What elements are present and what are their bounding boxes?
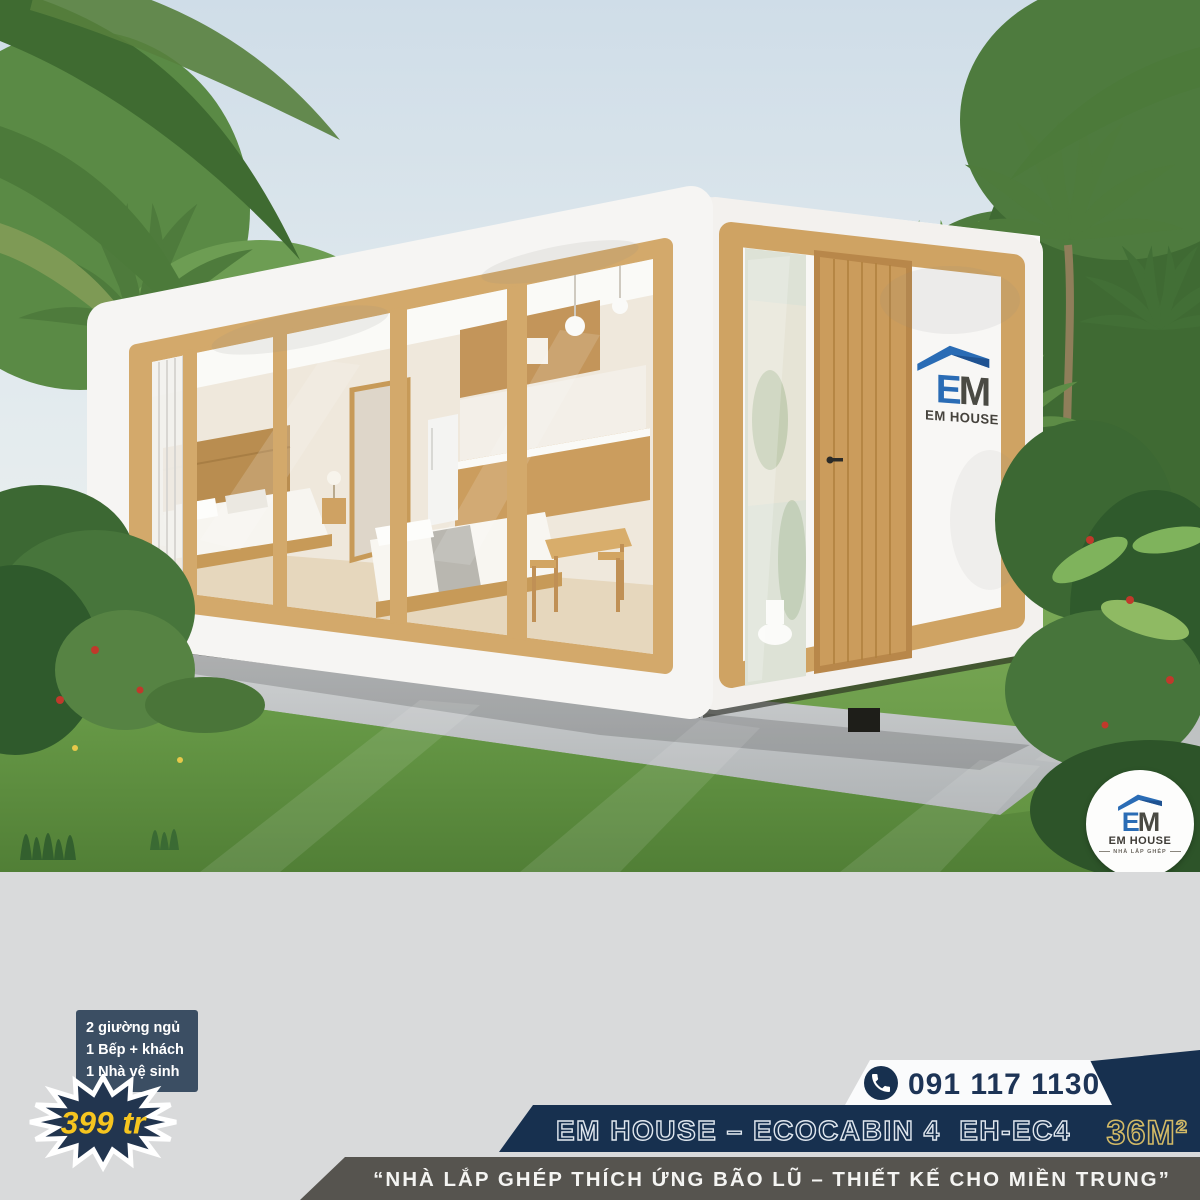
- pendant-lamp: [612, 298, 628, 314]
- wall-logo: EM EM HOUSE: [915, 341, 1008, 429]
- table-lamp: [327, 471, 341, 485]
- scene-svg: [0, 0, 1200, 872]
- area-label: 36M²: [1107, 1114, 1188, 1152]
- brand-badge: EM EM HOUSE NHÀ LẮP GHÉP: [1086, 770, 1194, 878]
- logo-em: EM: [915, 371, 1008, 412]
- nightstand: [322, 498, 346, 524]
- logo-em: EM: [1122, 811, 1159, 834]
- logo-e: E: [1122, 807, 1138, 837]
- feature-line: 2 giường ngủ: [86, 1018, 192, 1040]
- logo-tagline: NHÀ LẮP GHÉP: [1099, 849, 1180, 855]
- phone-icon: [864, 1066, 898, 1100]
- banners: 091 117 1130 EM HOUSE – ECOCABIN 4 EH-EC…: [0, 1040, 1200, 1200]
- hero-photo: EM EM HOUSE EM EM HOUSE NHÀ LẮP GHÉP: [0, 0, 1200, 872]
- mullion: [183, 351, 197, 596]
- poster: EM EM HOUSE EM EM HOUSE NHÀ LẮP GHÉP 2 g…: [0, 0, 1200, 1200]
- logo-e: E: [936, 367, 959, 413]
- product-title: EM HOUSE – ECOCABIN 4 EH-EC4: [556, 1115, 1071, 1146]
- logo-name: EM HOUSE: [1109, 835, 1172, 847]
- bathroom-window: [745, 248, 806, 686]
- cabin-leg: [848, 708, 880, 732]
- slogan-text: “NHÀ LẮP GHÉP THÍCH ỨNG BÃO LŨ – THIẾT K…: [373, 1167, 1171, 1191]
- logo-m: M: [959, 369, 988, 415]
- mullion: [273, 332, 287, 608]
- phone-number: 091 117 1130: [908, 1068, 1100, 1101]
- toilet: [766, 600, 784, 624]
- mullion: [507, 284, 527, 640]
- logo-m: M: [1138, 807, 1159, 837]
- mullion: [390, 308, 407, 624]
